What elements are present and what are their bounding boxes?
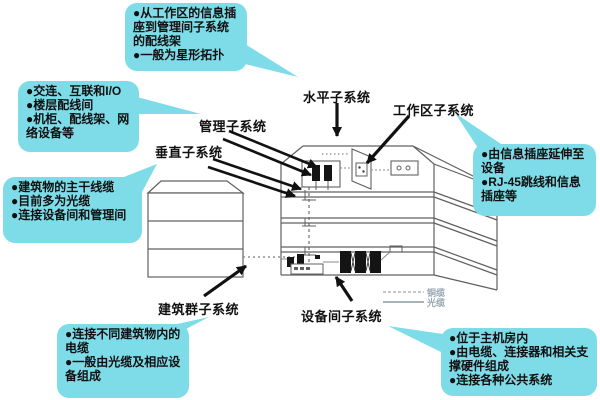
vertical-riser: [302, 187, 316, 262]
callout-line: ●连接不同建筑物内的电缆: [65, 328, 181, 356]
callout-line: ●由信息插座延伸至设备: [481, 148, 588, 176]
management-room: [302, 154, 348, 190]
callout-horizontal-note: ●从工作区的信息插座到管理间子系统的配线架 ●一般为星形拓扑: [125, 3, 247, 71]
arrow-work-area-subsystem: [367, 116, 409, 163]
callout-line: ●位于主机房内: [449, 332, 589, 346]
callout-management-note: ●交连、互联和I/O ●楼层配线间 ●机柜、配线架、网络设备等: [18, 81, 139, 152]
callout-line: ●由电缆、连接器和相关支撑硬件组成: [449, 346, 589, 374]
rack-3: [370, 251, 381, 273]
callout-line: ●机柜、配线架、网络设备等: [26, 113, 131, 141]
callout-line: ●一般由光缆及相应设备组成: [65, 356, 181, 384]
callout-line: ●连接设备间和管理间: [11, 209, 134, 223]
legend-fiber-label: 光缆: [427, 296, 445, 309]
label-campus-subsystem: 建筑群子系统: [158, 299, 239, 318]
callout-line: ●交连、互联和I/O: [26, 85, 131, 99]
callout-line: ●一般为星形拓扑: [133, 49, 239, 63]
callout-line: ●RJ-45跳线和信息插座等: [481, 176, 588, 204]
rack-2: [355, 251, 366, 273]
equipment-room: [281, 246, 402, 274]
cabling-system-diagram: ●从工作区的信息插座到管理间子系统的配线架 ●一般为星形拓扑 ●交连、互联和I/…: [0, 0, 600, 400]
label-horizontal-subsystem: 水平子系统: [303, 87, 371, 106]
callout-campus-note: ●连接不同建筑物内的电缆 ●一般由光缆及相应设备组成: [57, 324, 189, 398]
legend-lines: [383, 292, 424, 302]
arrow-management-1: [229, 131, 317, 167]
arrow-equipment-subsystem: [336, 277, 352, 301]
label-equipment-room-subsystem: 设备间子系统: [301, 306, 382, 325]
callout-line: ●从工作区的信息插座到管理间子系统的配线架: [133, 7, 239, 49]
left-building: [148, 181, 243, 277]
rack-1: [340, 251, 351, 273]
arrow-management-2: [223, 139, 311, 175]
patch-panel-2: [324, 165, 332, 181]
callout-equipment-note: ●位于主机房内 ●由电缆、连接器和相关支撑硬件组成 ●连接各种公共系统: [441, 328, 597, 396]
callout-vertical-note: ●建筑物的主干线缆 ●目前多为光缆 ●连接设备间和管理间: [3, 177, 142, 243]
callout-line: ●连接各种公共系统: [449, 374, 589, 388]
device-3: [315, 255, 320, 259]
callout-line: ●楼层配线间: [26, 99, 131, 113]
label-work-area-subsystem: 工作区子系统: [393, 100, 474, 119]
work-area-outlets: [340, 149, 418, 189]
callout-line: ●建筑物的主干线缆: [11, 181, 134, 195]
callout-work-area-note: ●由信息插座延伸至设备 ●RJ-45跳线和信息插座等: [473, 144, 596, 216]
callout-line: ●目前多为光缆: [11, 195, 134, 209]
label-vertical-subsystem: 垂直子系统: [155, 142, 223, 161]
label-management-subsystem: 管理子系统: [199, 116, 267, 135]
